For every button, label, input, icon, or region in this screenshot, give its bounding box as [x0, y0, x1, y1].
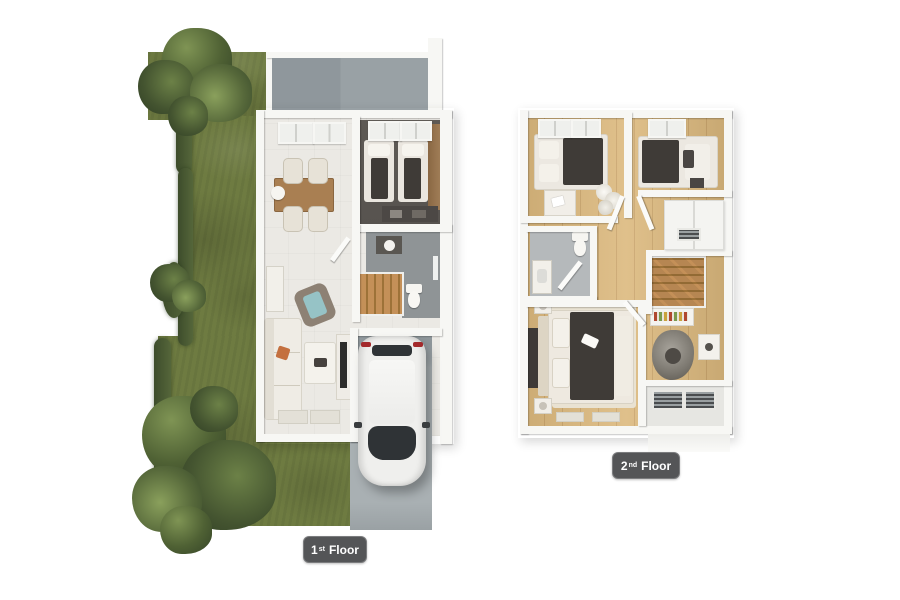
- f2-wall-stair-left: [646, 256, 652, 314]
- bed-pillow: [402, 144, 424, 156]
- floor-plan-scene: 1stFloor 2ndFloor: [0, 0, 900, 600]
- plant-pot: [665, 348, 681, 364]
- dining-chair: [283, 158, 303, 184]
- f2-wall-bath-top: [526, 226, 596, 232]
- sink-basin: [384, 240, 395, 251]
- nightstand: [534, 398, 552, 414]
- bush-canopy: [172, 280, 206, 312]
- f2-wall-nook-top: [646, 250, 732, 256]
- bed-duvet: [404, 158, 421, 199]
- balcony-vent-grille: [652, 390, 684, 410]
- f1-wall-center: [352, 224, 360, 322]
- bed-pillow: [368, 144, 390, 156]
- window: [538, 119, 572, 138]
- car-roof: [369, 360, 415, 424]
- tree-bottom: [132, 380, 317, 565]
- bathroom-mirror: [433, 256, 438, 280]
- car-mirror: [422, 422, 430, 428]
- bedside-mat: [592, 412, 620, 422]
- table-decor: [705, 343, 713, 351]
- bed-duvet: [371, 158, 388, 199]
- bathroom-vanity: [532, 260, 552, 294]
- window: [648, 119, 686, 138]
- balcony-vent-grille: [684, 390, 716, 410]
- car: [358, 336, 426, 486]
- bed-lamp: [683, 150, 694, 168]
- bed-pillow: [552, 318, 570, 348]
- window: [368, 121, 402, 141]
- closet: [664, 200, 724, 250]
- window: [313, 122, 346, 144]
- car-mirror: [354, 422, 362, 428]
- car-taillight: [413, 342, 423, 347]
- closet-vent: [677, 228, 701, 241]
- f2-wall-bottom: [520, 426, 732, 434]
- car-rear-window: [372, 345, 412, 356]
- window: [400, 121, 432, 141]
- f1-wall-right: [440, 110, 452, 444]
- bed-pillow: [552, 358, 570, 388]
- patio-wall-right: [428, 38, 442, 116]
- vanity-basin: [537, 269, 547, 283]
- first-floor-word: Floor: [329, 543, 359, 557]
- bed-duvet: [642, 140, 679, 183]
- f2-wall-bedroom-divider: [624, 112, 632, 218]
- bush-middle: [150, 254, 210, 324]
- car-taillight: [361, 342, 371, 347]
- tree-top: [138, 20, 268, 140]
- window: [571, 119, 601, 138]
- balcony-apron: [648, 434, 730, 452]
- side-table: [698, 334, 720, 360]
- second-floor-word: Floor: [641, 459, 671, 473]
- f2-wall-left: [520, 110, 528, 434]
- bathroom-sink: [376, 236, 402, 254]
- staircase-floor2: [652, 258, 704, 306]
- single-bed: [364, 140, 394, 202]
- bookshelf: [650, 308, 694, 326]
- double-bed: [534, 134, 608, 190]
- staircase-floor1: [360, 274, 402, 314]
- single-bed: [398, 140, 428, 202]
- f1-wall-dining-bedroom: [352, 116, 360, 232]
- first-floor-ordinal: st: [319, 546, 325, 553]
- second-floor-label: 2ndFloor: [612, 452, 680, 479]
- f2-wall-bedroom2-bottom: [638, 190, 732, 197]
- double-bed: [638, 136, 718, 188]
- first-floor-label: 1stFloor: [303, 536, 367, 563]
- books: [654, 312, 688, 321]
- folded-blanket: [616, 316, 631, 396]
- car-windshield: [368, 426, 416, 460]
- f2-wall-bath-right: [590, 226, 597, 302]
- f2-wall-balcony-top: [646, 380, 732, 386]
- bedroom-dresser: [382, 206, 438, 222]
- bed-duvet: [570, 312, 614, 400]
- second-floor-number: 2: [621, 459, 628, 473]
- f1-wall-garage-top: [350, 328, 442, 336]
- bed-duvet: [563, 138, 603, 185]
- armchair-cushion: [302, 291, 328, 320]
- bed-pillow: [539, 141, 559, 159]
- bed-pillow: [539, 164, 559, 182]
- first-floor-number: 1: [311, 543, 318, 557]
- second-floor-ordinal: nd: [629, 462, 638, 469]
- dining-chair: [308, 206, 328, 232]
- tv-screen: [340, 342, 347, 388]
- tree-canopy: [160, 506, 212, 554]
- lamp: [539, 402, 547, 410]
- coffee-table: [304, 342, 336, 384]
- f2-wall-master-top: [526, 300, 638, 307]
- table-tray: [314, 358, 327, 367]
- toilet-bowl: [574, 239, 586, 256]
- dresser-item: [390, 210, 402, 218]
- master-bed: [538, 308, 632, 404]
- f1-wall-bedroom-bath: [352, 224, 452, 232]
- tree-canopy: [168, 96, 208, 136]
- window: [278, 122, 314, 144]
- desk-paper: [551, 196, 565, 208]
- dining-chair: [283, 206, 303, 232]
- toilet-bowl: [408, 291, 420, 308]
- dresser-item: [412, 210, 426, 218]
- tree-canopy: [190, 386, 238, 432]
- plant-tuft: [598, 200, 613, 215]
- dining-chair: [308, 158, 328, 184]
- desk: [544, 190, 576, 216]
- dinner-plate: [271, 186, 285, 200]
- patio-concrete: [272, 58, 428, 114]
- bedside-mat: [556, 412, 584, 422]
- kitchen-cabinet: [266, 266, 284, 312]
- f2-wall-bedroom1-bottom: [520, 216, 618, 223]
- throw-pillow: [275, 345, 290, 360]
- bedroom-side-item: [690, 178, 704, 188]
